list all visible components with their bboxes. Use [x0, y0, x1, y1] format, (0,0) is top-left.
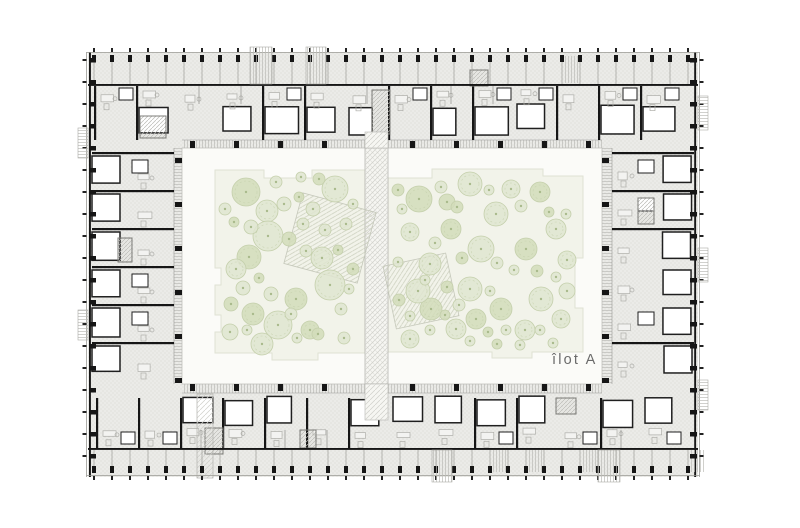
floor-plan-drawing [0, 0, 800, 528]
architectural-floor-plan: îlot A [0, 0, 800, 528]
block-label: îlot A [552, 352, 622, 368]
